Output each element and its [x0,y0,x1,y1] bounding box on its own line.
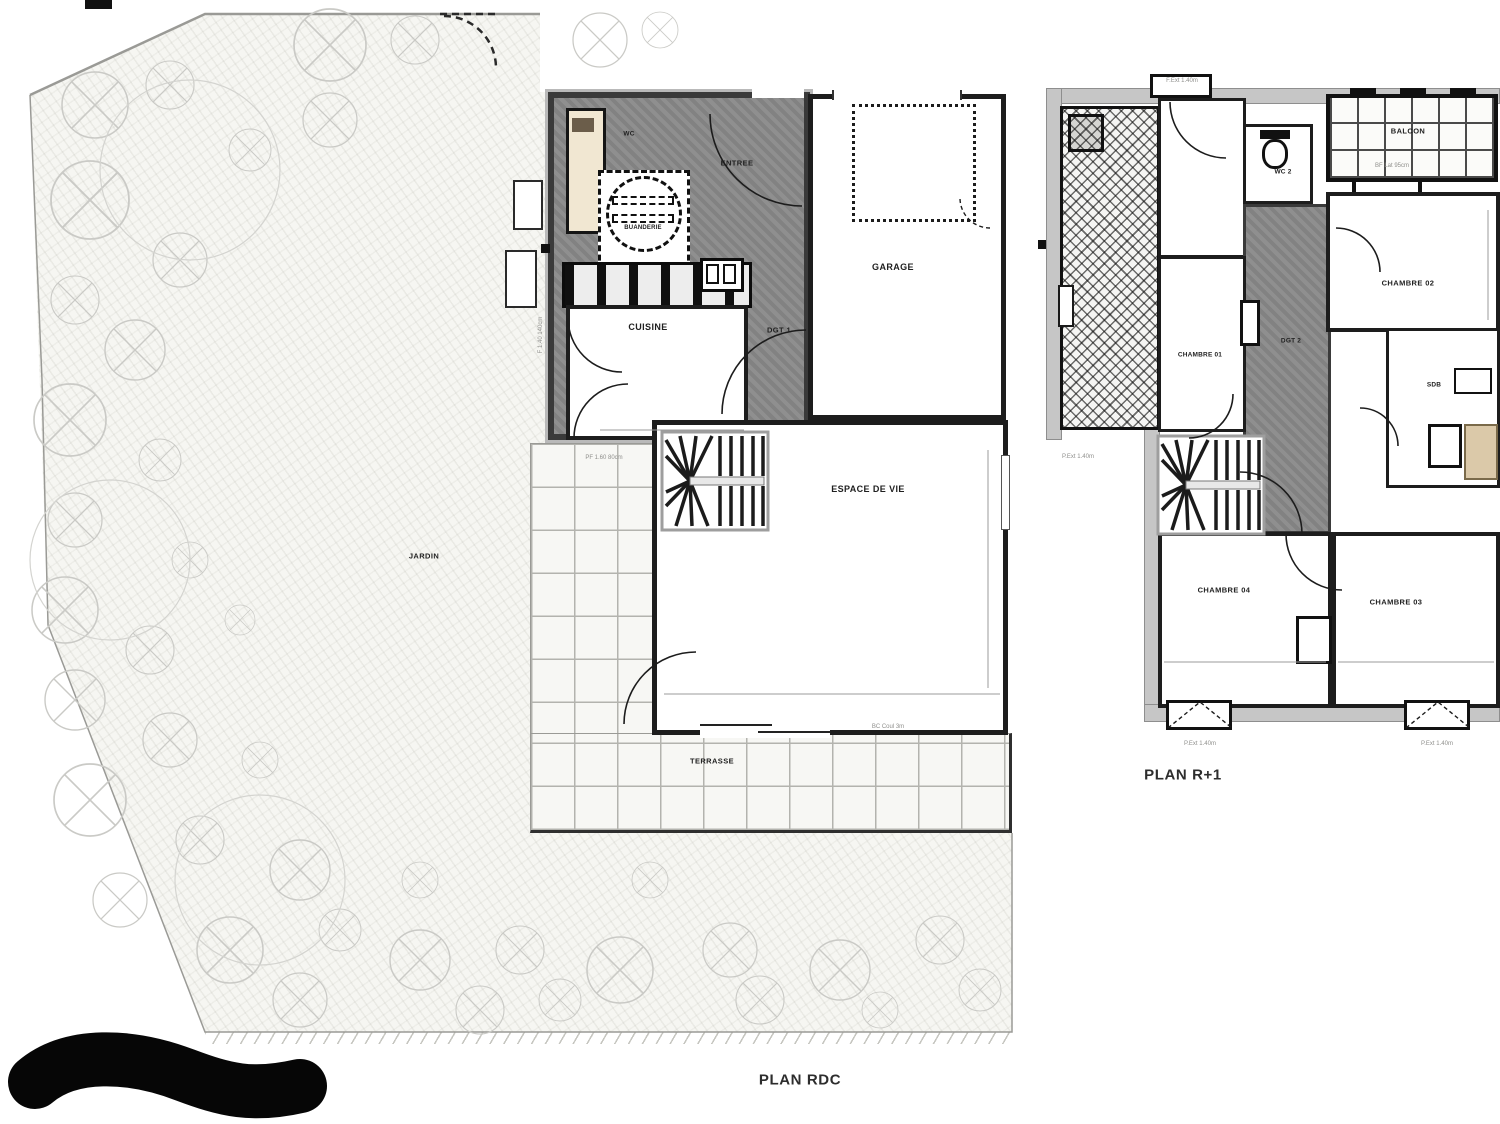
r1-bottom-door-left [1166,700,1232,730]
room-label-chambre04: CHAMBRE 04 [1198,586,1251,595]
rdc-laundry-bar1 [612,196,674,205]
room-label-entree: ENTREE [721,159,754,168]
room-label-terrasse: TERRASSE [690,757,734,766]
annotation-window-terrace: PF 1.60 80cm [585,455,622,461]
room-label-wc2: WC 2 [1274,169,1291,176]
rdc-wall-marker [541,244,550,253]
r1-balcony-post1 [1350,88,1376,96]
plan-r1-title: PLAN R+1 [1144,767,1222,784]
annotation-bay-door: BC Coul 3m [872,724,904,730]
rdc-sliding-bay-leaf2 [758,731,830,733]
r1-balcony-post3 [1450,88,1476,96]
room-label-chambre01: CHAMBRE 01 [1178,352,1222,359]
r1-corridor-closet [1240,300,1260,346]
room-label-espace-de-vie: ESPACE DE VIE [831,484,905,494]
r1-chambre02-room [1326,192,1500,332]
room-label-dgt2: DGT 2 [1281,338,1301,345]
r1-bottom-door-right [1404,700,1470,730]
annotation-r1-top-window: F.Ext 1.40m [1166,78,1198,84]
property-line-hatch [205,1032,1012,1044]
rdc-sliding-bay-opening [700,718,830,738]
rdc-sink-basin1 [706,264,719,284]
r1-hatched-duct [1068,114,1104,152]
room-label-cuisine: CUISINE [628,322,667,332]
r1-sdb-shower [1428,424,1462,468]
annotation-window-left: F 1.40 140cm [538,317,544,354]
r1-landing [1158,98,1246,258]
annotation-r1-left-door: P.Ext 1.40m [1062,454,1094,460]
annotation-r1-bottom-left-door: P.Ext 1.40m [1184,741,1216,747]
room-label-dgt1: DGT 1 [767,326,791,335]
r1-toilet-tank [1260,130,1290,139]
room-label-sdb: SDB [1427,382,1441,389]
rdc-outdoor-post1 [513,180,543,230]
rdc-entry-door-opening [752,88,804,98]
room-label-jardin: JARDIN [409,552,439,561]
r1-toilet-bowl [1262,139,1288,169]
rdc-garage-mezzanine-dotted [852,104,976,222]
r1-balcony [1326,94,1498,182]
rdc-laundry-bar2 [612,214,674,223]
floorplan-page: WC ENTREE BUANDERIE CUISINE DGT 1 GARAGE… [0,0,1500,1124]
rdc-garage-door-opening [832,90,962,100]
r1-chambre01-room [1158,256,1246,432]
r1-adjacent-hatched-block [1060,106,1160,430]
rdc-outdoor-post2 [505,250,537,308]
r1-sdb-cabinet [1464,424,1498,480]
rdc-sink-basin2 [723,264,736,284]
r1-chambre03-room [1332,532,1500,708]
redaction-scribble [35,1059,300,1091]
r1-left-window [1058,285,1074,327]
r1-dgt2-corridor [1243,204,1331,534]
rdc-sliding-bay-leaf1 [700,724,772,726]
r1-balcony-post2 [1400,88,1426,96]
rdc-living-window [1001,455,1010,530]
room-label-balcon: BALCON [1391,127,1425,136]
terrace-main [530,733,1012,833]
annotation-r1-bottom-right-door: P.Ext 1.40m [1421,741,1453,747]
plan-rdc-title: PLAN RDC [759,1072,841,1089]
room-label-chambre02: CHAMBRE 02 [1382,279,1435,288]
rdc-living-room [652,420,1008,735]
room-label-buanderie: BUANDERIE [624,225,661,231]
r1-sdb-sink [1454,368,1492,394]
room-label-wc: WC [623,131,634,138]
room-label-garage: GARAGE [872,262,914,272]
room-label-chambre03: CHAMBRE 03 [1370,598,1423,607]
page-edge-mark [85,0,112,9]
annotation-balcon-note: BF Lat 95cm [1375,163,1409,169]
rdc-wc-fixture [572,118,594,132]
r1-chambre04-closet [1296,616,1332,664]
